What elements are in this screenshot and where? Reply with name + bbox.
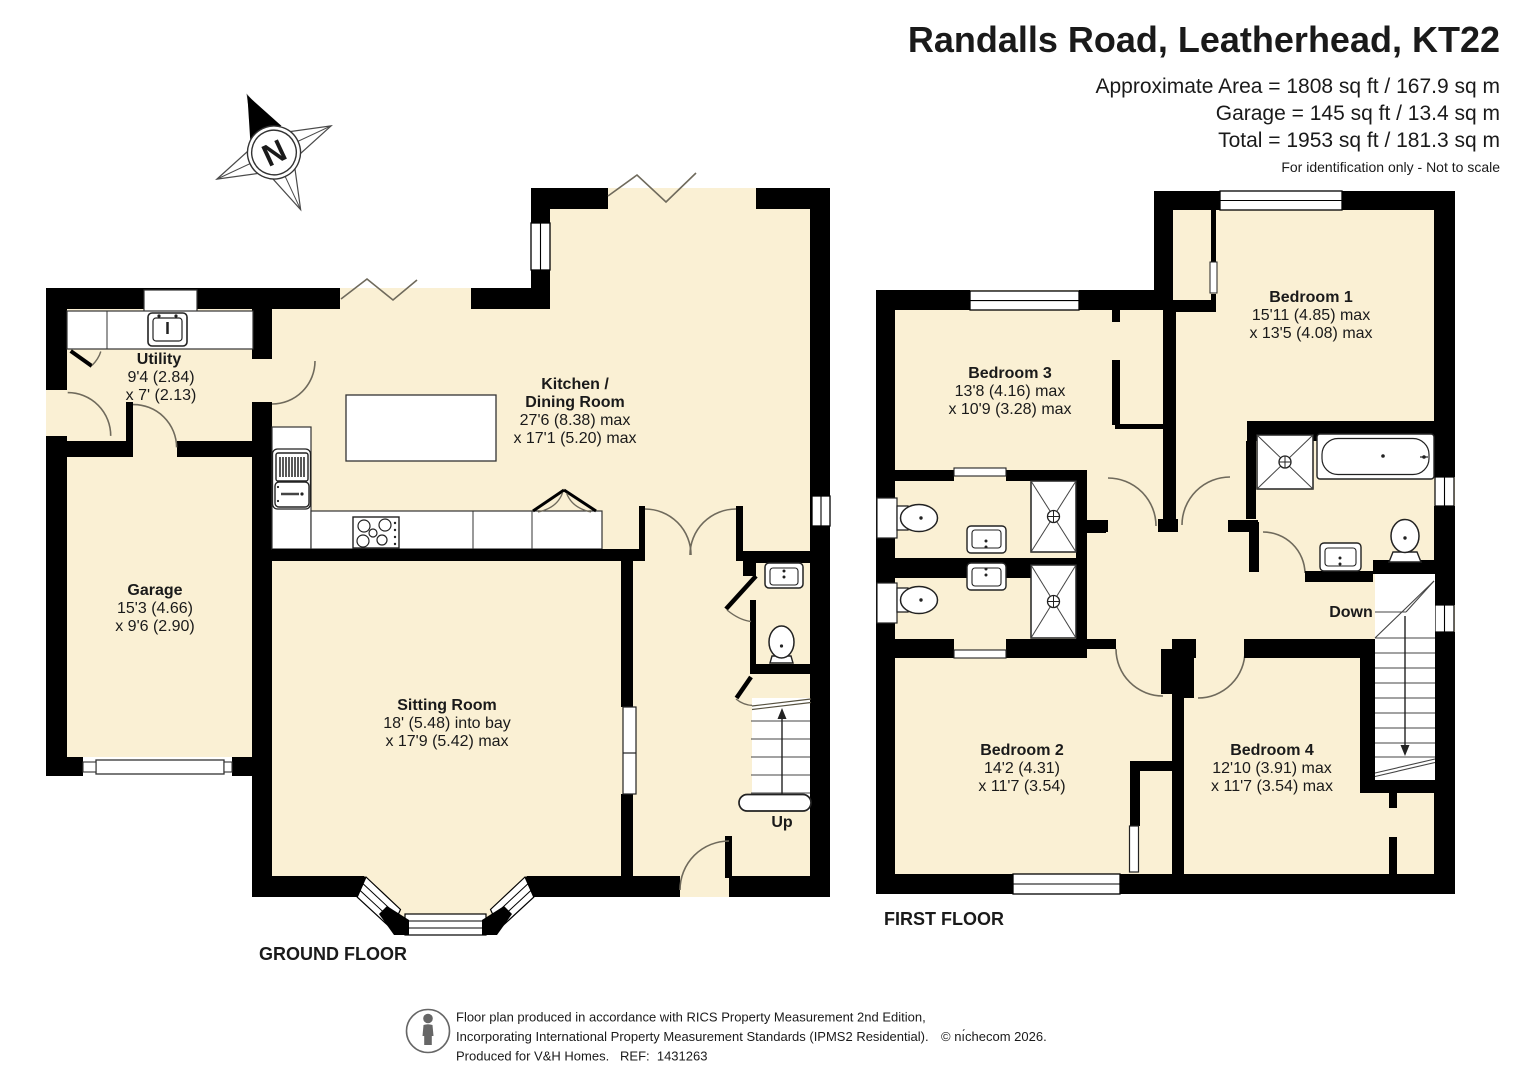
svg-text:x 13'5 (4.08) max: x 13'5 (4.08) max: [1249, 325, 1372, 342]
svg-text:Bedroom 1: Bedroom 1: [1269, 289, 1353, 306]
svg-text:Garage: Garage: [127, 582, 182, 599]
svg-text:15'3 (4.66): 15'3 (4.66): [117, 600, 193, 617]
svg-text:27'6 (8.38) max: 27'6 (8.38) max: [520, 412, 631, 429]
svg-text:Kitchen /: Kitchen /: [541, 376, 609, 393]
svg-text:Produced for V&H Homes. REF:: Produced for V&H Homes. REF: 1431263: [456, 1049, 707, 1064]
svg-text:9'4 (2.84): 9'4 (2.84): [127, 369, 194, 386]
svg-text:Bedroom 2: Bedroom 2: [980, 742, 1064, 759]
svg-text:x 7' (2.13): x 7' (2.13): [126, 387, 197, 404]
svg-text:x 9'6 (2.90): x 9'6 (2.90): [115, 618, 195, 635]
svg-text:x 17'1 (5.20) max: x 17'1 (5.20) max: [513, 430, 636, 447]
svg-text:Bedroom 3: Bedroom 3: [968, 365, 1052, 382]
svg-text:14'2 (4.31): 14'2 (4.31): [984, 760, 1060, 777]
svg-text:Floor plan produced in accorda: Floor plan produced in accordance with R…: [456, 1010, 926, 1025]
svg-text:x 10'9 (3.28) max: x 10'9 (3.28) max: [948, 401, 1071, 418]
svg-text:18' (5.48) into bay: 18' (5.48) into bay: [383, 715, 511, 732]
svg-text:x 11'7 (3.54) max: x 11'7 (3.54) max: [1211, 778, 1333, 795]
svg-text:13'8 (4.16) max: 13'8 (4.16) max: [955, 383, 1066, 400]
svg-text:FIRST FLOOR: FIRST FLOOR: [884, 909, 1004, 929]
svg-text:x 17'9 (5.42) max: x 17'9 (5.42) max: [385, 733, 508, 750]
svg-text:Up: Up: [771, 814, 793, 831]
svg-text:GROUND FLOOR: GROUND FLOOR: [259, 944, 407, 964]
svg-text:Incorporating International Pr: Incorporating International Property Mea…: [456, 1029, 929, 1044]
svg-text:Sitting Room: Sitting Room: [397, 697, 497, 714]
svg-text:Approximate Area = 1808 sq ft: Approximate Area = 1808 sq ft / 167.9 sq…: [1096, 75, 1501, 98]
svg-text:Garage = 145 sq ft / 13.4 sq m: Garage = 145 sq ft / 13.4 sq m: [1216, 102, 1500, 125]
svg-text:12'10 (3.91) max: 12'10 (3.91) max: [1212, 760, 1332, 777]
svg-text:Total = 1953 sq ft / 181.3 sq: Total = 1953 sq ft / 181.3 sq m: [1218, 129, 1500, 152]
svg-text:Dining Room: Dining Room: [525, 394, 625, 411]
svg-text:Down: Down: [1329, 604, 1373, 621]
svg-text:For identification only - Not: For identification only - Not to scale: [1281, 159, 1500, 175]
svg-text:x 11'7 (3.54): x 11'7 (3.54): [978, 778, 1065, 795]
svg-text:15'11 (4.85) max: 15'11 (4.85) max: [1252, 307, 1370, 324]
svg-text:Utility: Utility: [137, 351, 182, 368]
svg-text:© nı́checom 2026.: © nı́checom 2026.: [941, 1029, 1047, 1044]
svg-text:Bedroom 4: Bedroom 4: [1230, 742, 1314, 759]
svg-text:Randalls Road, Leatherhead, KT: Randalls Road, Leatherhead, KT22: [908, 19, 1500, 60]
